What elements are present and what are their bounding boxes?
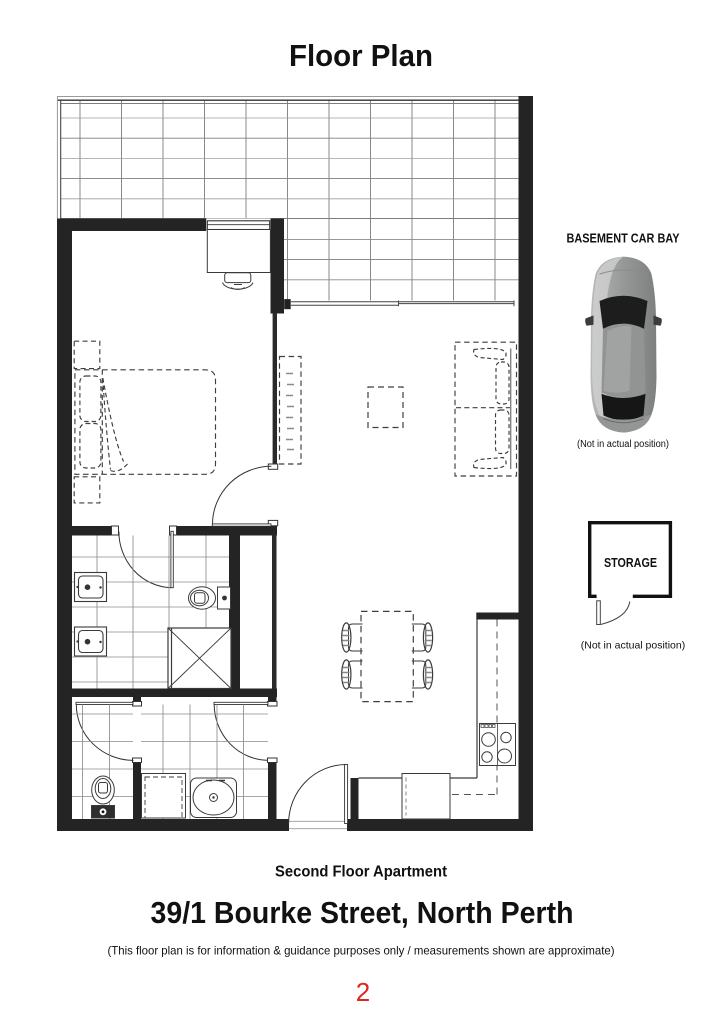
svg-text:(Not in actual position): (Not in actual position) bbox=[581, 640, 685, 652]
svg-text:2: 2 bbox=[356, 977, 370, 1007]
svg-text:39/1 Bourke Street, North Pert: 39/1 Bourke Street, North Perth bbox=[151, 895, 574, 930]
svg-text:(Not in actual position): (Not in actual position) bbox=[577, 439, 669, 450]
svg-text:Floor Plan: Floor Plan bbox=[289, 38, 433, 73]
svg-text:BASEMENT CAR BAY: BASEMENT CAR BAY bbox=[567, 232, 681, 246]
svg-text:STORAGE: STORAGE bbox=[604, 556, 657, 570]
svg-text:Second Floor Apartment: Second Floor Apartment bbox=[275, 864, 448, 881]
svg-text:(This floor plan is for inform: (This floor plan is for information & gu… bbox=[108, 945, 615, 958]
